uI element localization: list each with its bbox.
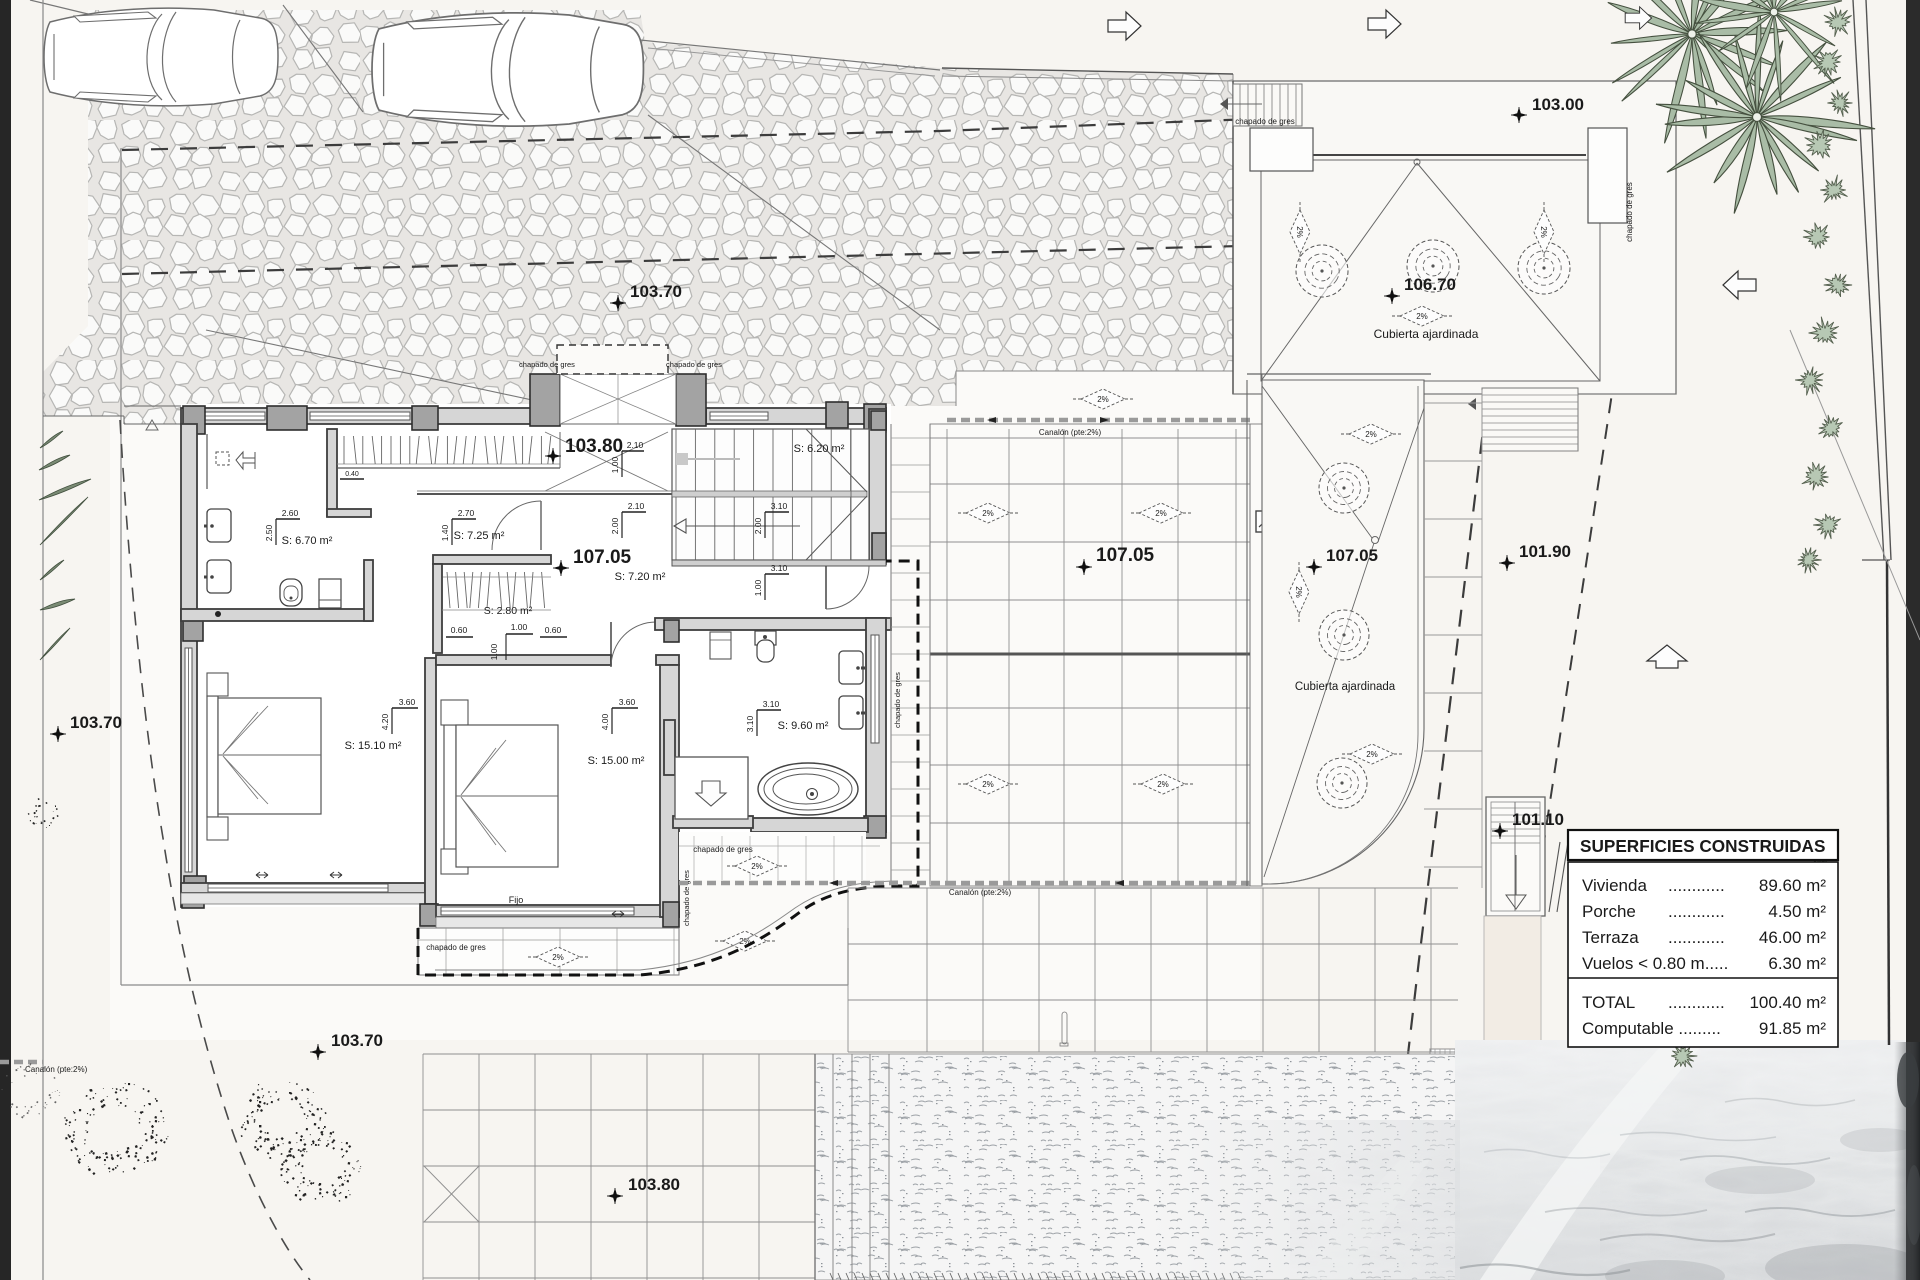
- svg-text:103.00: 103.00: [1532, 95, 1584, 114]
- svg-text:4.20: 4.20: [380, 713, 390, 730]
- svg-text:1.00: 1.00: [511, 622, 528, 632]
- svg-text:2%: 2%: [1155, 509, 1167, 518]
- svg-text:103.70: 103.70: [70, 713, 122, 732]
- svg-text:1.00: 1.00: [489, 643, 499, 660]
- svg-text:chapado de gres: chapado de gres: [682, 870, 691, 926]
- svg-text:106.70: 106.70: [1404, 275, 1456, 294]
- svg-text:Canalón (pte:2%): Canalón (pte:2%): [949, 888, 1012, 897]
- svg-text:3.10: 3.10: [771, 501, 788, 511]
- svg-text:2%: 2%: [982, 509, 994, 518]
- svg-text:Canalón (pte:2%): Canalón (pte:2%): [1039, 428, 1102, 437]
- svg-text:S: 6.20 m²: S: 6.20 m²: [794, 443, 845, 455]
- svg-text:3.10: 3.10: [771, 563, 788, 573]
- svg-text:3.10: 3.10: [745, 715, 755, 732]
- svg-text:2.60: 2.60: [282, 508, 299, 518]
- svg-text:1.00: 1.00: [610, 456, 620, 473]
- svg-text:3.10: 3.10: [763, 699, 780, 709]
- svg-text:4.00: 4.00: [600, 713, 610, 730]
- svg-text:chapado de gres: chapado de gres: [1625, 182, 1634, 242]
- svg-text:3.60: 3.60: [619, 697, 636, 707]
- svg-text:chapado de gres: chapado de gres: [666, 360, 722, 369]
- svg-text:2%: 2%: [1539, 226, 1548, 238]
- svg-text:Canalón (pte:2%): Canalón (pte:2%): [25, 1065, 88, 1074]
- svg-text:chapado de gres: chapado de gres: [693, 845, 753, 854]
- svg-text:2%: 2%: [1295, 226, 1304, 238]
- svg-text:S: 7.20 m²: S: 7.20 m²: [615, 571, 666, 583]
- svg-text:2.70: 2.70: [458, 508, 475, 518]
- svg-text:2%: 2%: [1365, 430, 1377, 439]
- svg-text:TOTAL: TOTAL: [1582, 993, 1635, 1012]
- svg-text:101.10: 101.10: [1512, 810, 1564, 829]
- svg-text:3.60: 3.60: [399, 697, 416, 707]
- svg-text:2%: 2%: [552, 953, 564, 962]
- svg-text:Vuelos < 0.80 m.....: Vuelos < 0.80 m.....: [1582, 954, 1728, 973]
- svg-text:............: ............: [1668, 928, 1725, 947]
- svg-text:2.50: 2.50: [264, 524, 274, 541]
- svg-text:2.00: 2.00: [610, 517, 620, 534]
- svg-text:1.00: 1.00: [753, 579, 763, 596]
- svg-text:100.40 m²: 100.40 m²: [1749, 993, 1826, 1012]
- svg-text:2.10: 2.10: [628, 501, 645, 511]
- svg-text:............: ............: [1668, 876, 1725, 895]
- svg-text:2.00: 2.00: [753, 517, 763, 534]
- svg-text:S: 15.10 m²: S: 15.10 m²: [345, 740, 402, 752]
- svg-text:0.60: 0.60: [451, 625, 468, 635]
- svg-text:............: ............: [1668, 902, 1725, 921]
- svg-text:2%: 2%: [1366, 750, 1378, 759]
- svg-text:S: 15.00 m²: S: 15.00 m²: [588, 755, 645, 767]
- svg-text:103.70: 103.70: [331, 1031, 383, 1050]
- svg-text:Vivienda: Vivienda: [1582, 876, 1647, 895]
- svg-text:103.70: 103.70: [630, 282, 682, 301]
- svg-text:4.50 m²: 4.50 m²: [1768, 902, 1826, 921]
- svg-text:S: 9.60 m²: S: 9.60 m²: [778, 720, 829, 732]
- svg-text:1.40: 1.40: [440, 524, 450, 541]
- svg-text:91.85 m²: 91.85 m²: [1759, 1019, 1826, 1038]
- svg-text:2%: 2%: [1294, 586, 1303, 598]
- svg-text:Cubierta ajardinada: Cubierta ajardinada: [1374, 327, 1479, 341]
- svg-text:107.05: 107.05: [1326, 546, 1378, 565]
- svg-text:0.40: 0.40: [345, 471, 359, 478]
- svg-text:103.80: 103.80: [565, 436, 623, 457]
- svg-text:............: ............: [1668, 993, 1725, 1012]
- svg-text:0.60: 0.60: [545, 625, 562, 635]
- svg-text:S: 2.80 m²: S: 2.80 m²: [484, 605, 533, 617]
- svg-text:2.10: 2.10: [627, 440, 644, 450]
- svg-text:107.05: 107.05: [1096, 545, 1155, 566]
- svg-text:6.30 m²: 6.30 m²: [1768, 954, 1826, 973]
- svg-text:46.00 m²: 46.00 m²: [1759, 928, 1826, 947]
- svg-text:chapado de gres: chapado de gres: [426, 943, 486, 952]
- svg-text:chapado de gres: chapado de gres: [893, 672, 902, 728]
- svg-text:Fijo: Fijo: [509, 895, 524, 905]
- svg-text:Cubierta ajardinada: Cubierta ajardinada: [1295, 681, 1396, 693]
- svg-text:S: 7.25 m²: S: 7.25 m²: [454, 530, 505, 542]
- svg-text:chapado de gres: chapado de gres: [1235, 117, 1295, 126]
- svg-text:S: 6.70 m²: S: 6.70 m²: [282, 535, 333, 547]
- svg-text:Computable .........: Computable .........: [1582, 1019, 1721, 1038]
- svg-text:89.60 m²: 89.60 m²: [1759, 876, 1826, 895]
- svg-text:107.05: 107.05: [573, 547, 632, 568]
- svg-text:2%: 2%: [982, 780, 994, 789]
- svg-text:2%: 2%: [1416, 312, 1428, 321]
- svg-text:Porche: Porche: [1582, 902, 1636, 921]
- svg-text:101.90: 101.90: [1519, 542, 1571, 561]
- svg-text:chapado de gres: chapado de gres: [519, 360, 575, 369]
- svg-text:2%: 2%: [751, 862, 763, 871]
- svg-text:2%: 2%: [1097, 395, 1109, 404]
- svg-text:SUPERFICIES CONSTRUIDAS: SUPERFICIES CONSTRUIDAS: [1580, 836, 1825, 856]
- svg-text:103.80: 103.80: [628, 1175, 680, 1194]
- svg-text:Terraza: Terraza: [1582, 928, 1639, 947]
- svg-text:2%: 2%: [1157, 780, 1169, 789]
